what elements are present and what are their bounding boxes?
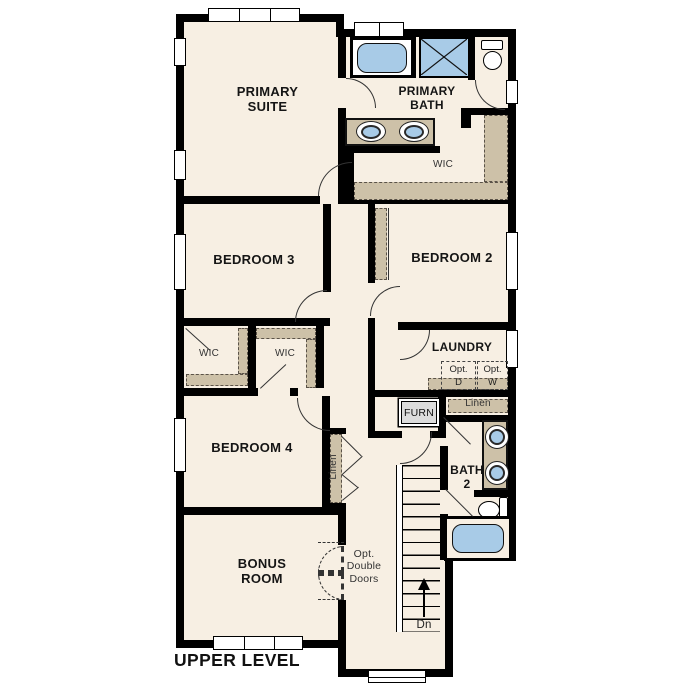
room-label-laundry: LAUNDRY bbox=[418, 340, 506, 354]
stair-rail bbox=[396, 465, 403, 632]
window-mullion bbox=[244, 637, 245, 649]
optional-door-stub bbox=[318, 542, 344, 543]
optional-dryer: Opt. D bbox=[441, 361, 476, 390]
page-title: UPPER LEVEL bbox=[174, 650, 414, 671]
wall-segment bbox=[368, 318, 375, 397]
wall-segment bbox=[248, 326, 256, 388]
sink-icon bbox=[489, 429, 505, 445]
label-opt-double-doors: Opt. Double Doors bbox=[338, 548, 390, 585]
wall-segment bbox=[316, 326, 324, 388]
floor-plan: Opt. D Opt. W FURN PRIMARY SUITE PRIMARY bbox=[0, 0, 687, 687]
wic-bedroom3-shelf bbox=[238, 328, 248, 374]
wall-segment bbox=[323, 204, 331, 292]
wall-segment bbox=[398, 322, 508, 330]
label-linen-hall: Linen bbox=[448, 398, 508, 410]
wall-segment bbox=[290, 388, 298, 396]
room-label-wic-bedroom3: WIC bbox=[186, 348, 232, 360]
optional-dryer-letter: D bbox=[442, 377, 475, 388]
stairs bbox=[403, 465, 440, 632]
optional-washer-letter: W bbox=[478, 377, 507, 388]
room-label-primary-suite: PRIMARY SUITE bbox=[200, 84, 335, 115]
optional-washer: Opt. W bbox=[477, 361, 508, 390]
window-mullion bbox=[379, 23, 380, 36]
sink-icon bbox=[404, 125, 424, 139]
sink-icon bbox=[361, 125, 381, 139]
room-label-bonus-room: BONUS ROOM bbox=[192, 556, 332, 587]
room-label-bedroom2: BEDROOM 2 bbox=[396, 250, 508, 265]
wic-bedroom3-shelf bbox=[186, 374, 248, 386]
wall-segment bbox=[176, 388, 258, 396]
optional-dryer-label: Opt. bbox=[442, 364, 475, 375]
wall-segment bbox=[508, 29, 516, 561]
toilet-icon bbox=[481, 40, 503, 50]
wall-segment bbox=[368, 390, 508, 397]
window bbox=[174, 150, 186, 180]
room-label-wic-primary: WIC bbox=[420, 159, 466, 171]
label-stairs-down: Dn bbox=[412, 619, 436, 633]
wall-segment bbox=[413, 37, 416, 78]
label-linen-bedroom4: Linen bbox=[328, 447, 340, 487]
shower-icon bbox=[419, 37, 470, 78]
window bbox=[368, 670, 426, 683]
wall-segment bbox=[368, 431, 402, 438]
room-label-bath2: BATH 2 bbox=[444, 463, 490, 491]
wic-primary-shelf bbox=[354, 182, 508, 200]
optional-washer-label: Opt. bbox=[478, 364, 507, 375]
wic-bedroom4-shelf bbox=[306, 339, 316, 388]
room-label-wic-bedroom4: WIC bbox=[262, 348, 308, 360]
wall-segment bbox=[341, 146, 440, 153]
wall-segment bbox=[445, 553, 453, 677]
bathtub-icon bbox=[357, 43, 407, 73]
wall-segment bbox=[338, 37, 346, 78]
window-mullion bbox=[270, 9, 271, 21]
bathtub-icon bbox=[452, 524, 504, 553]
window bbox=[506, 80, 518, 104]
room-label-bedroom3: BEDROOM 3 bbox=[184, 252, 324, 267]
bedroom2-closet-shelf bbox=[375, 208, 387, 280]
window bbox=[208, 8, 300, 22]
window bbox=[354, 22, 404, 37]
wic-primary-shelf bbox=[484, 115, 508, 182]
wall-segment bbox=[368, 204, 375, 283]
furnace-label: FURN bbox=[404, 407, 434, 419]
furnace-unit: FURN bbox=[401, 401, 437, 424]
room-label-bedroom4: BEDROOM 4 bbox=[182, 440, 322, 455]
room-label-primary-bath: PRIMARY BATH bbox=[384, 84, 470, 112]
sink-icon bbox=[489, 465, 505, 481]
wall-segment bbox=[330, 503, 346, 509]
wic-bedroom4-shelf bbox=[256, 328, 316, 339]
wall-segment bbox=[176, 507, 346, 515]
wall-segment bbox=[176, 14, 184, 648]
stairs-direction-arrow bbox=[423, 589, 425, 617]
window bbox=[174, 38, 186, 66]
window-mullion bbox=[274, 637, 275, 649]
toilet-icon bbox=[483, 51, 502, 70]
window-mullion bbox=[239, 9, 240, 21]
wall-segment bbox=[176, 196, 320, 204]
window-mullion bbox=[369, 677, 425, 678]
shower-glass-lines bbox=[421, 39, 467, 75]
closet-door-leaf bbox=[388, 208, 389, 280]
wall-segment bbox=[338, 515, 346, 545]
window bbox=[213, 636, 303, 650]
